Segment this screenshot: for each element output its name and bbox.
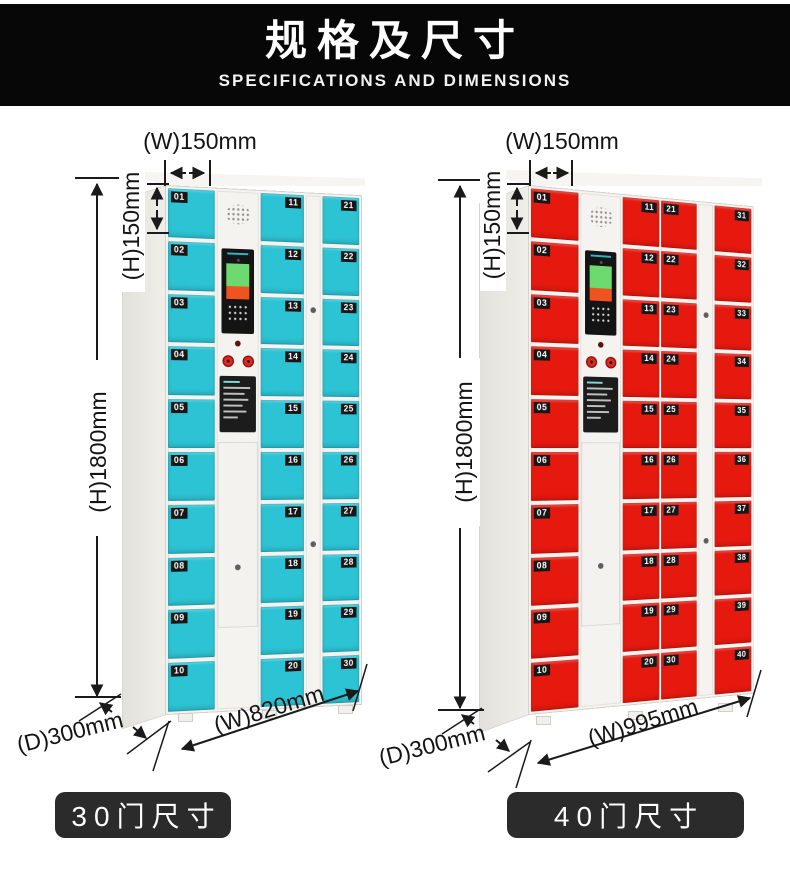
locker-door: 24	[661, 351, 697, 398]
locker-30-top-panel	[122, 167, 365, 186]
door-number-badge: 09	[171, 613, 188, 625]
locker-door: 05	[168, 399, 215, 448]
locker-column-doors: 11121314151617181920	[623, 197, 660, 703]
door-number-badge: 21	[341, 200, 357, 211]
locker-door: 35	[715, 403, 752, 449]
locker-door: 11	[623, 197, 660, 247]
locker-column-doors: 21222324252627282930	[661, 200, 697, 699]
locker-door: 25	[322, 401, 359, 448]
locker-door: 05	[531, 399, 579, 448]
terminal-panel	[221, 248, 254, 334]
locker-40-top-panel	[479, 166, 762, 186]
door-number-badge: 30	[341, 658, 357, 669]
locker-door: 14	[623, 350, 660, 398]
door-number-badge: 21	[664, 204, 679, 216]
door-number-badge: 19	[642, 606, 657, 617]
door-number-badge: 08	[171, 560, 188, 571]
locker-door: 28	[661, 551, 697, 599]
door-number-badge: 16	[642, 455, 657, 466]
locker-door: 34	[715, 353, 752, 399]
door-number-badge: 15	[285, 403, 301, 414]
door-number-badge: 34	[735, 357, 749, 368]
dim-door-height-30: (H)150mm	[119, 160, 145, 292]
locker-door: 37	[715, 500, 752, 546]
locker-door: 14	[261, 348, 304, 396]
dim-height-40: (H)1800mm	[452, 358, 480, 526]
locker-door: 13	[261, 297, 304, 346]
door-number-badge: 19	[285, 609, 301, 620]
door-number-badge: 15	[642, 404, 657, 415]
locker-door: 32	[715, 255, 752, 303]
door-number-badge: 31	[735, 210, 749, 221]
locker-door: 08	[531, 556, 579, 607]
door-number-badge: 05	[534, 402, 550, 413]
header-banner: 规格及尺寸 SPECIFICATIONS AND DIMENSIONS	[0, 4, 790, 106]
locker-door: 25	[661, 402, 697, 449]
page-subtitle: SPECIFICATIONS AND DIMENSIONS	[219, 71, 572, 91]
door-number-badge: 20	[642, 656, 657, 668]
door-number-badge: 38	[735, 552, 749, 563]
locker-door: 21	[322, 196, 359, 245]
locker-door: 29	[322, 604, 359, 652]
locker-40-front: 0102030405060708091011121314151617181920…	[528, 185, 754, 715]
instruction-sticker	[583, 376, 618, 432]
door-number-badge: 39	[735, 601, 749, 612]
locker-door: 09	[531, 607, 579, 658]
door-number-badge: 24	[341, 353, 357, 364]
locker-door: 12	[623, 248, 660, 297]
locker-door: 40	[715, 646, 752, 694]
label-30-door-size: 30门尺寸	[55, 792, 231, 838]
door-number-badge: 12	[642, 252, 657, 264]
locker-30-front: 0102030405060708091011121314151617181920…	[165, 185, 362, 715]
door-number-badge: 20	[285, 660, 301, 671]
locker-door: 03	[168, 294, 215, 344]
instruction-sticker	[220, 376, 256, 433]
terminal-panel	[585, 250, 616, 336]
speaker-grille-icon	[589, 206, 612, 227]
locker-door: 19	[623, 603, 660, 652]
door-number-badge: 26	[664, 455, 679, 465]
locker-column-doors: 01020304050607080910	[531, 188, 579, 711]
door-number-badge: 27	[664, 505, 679, 516]
locker-door: 15	[261, 400, 304, 448]
locker-door: 21	[661, 200, 697, 249]
door-number-badge: 01	[171, 191, 188, 203]
door-number-badge: 07	[534, 507, 550, 518]
door-number-badge: 10	[534, 664, 550, 676]
door-number-badge: 16	[285, 455, 301, 466]
door-number-badge: 37	[735, 503, 749, 513]
service-door	[218, 442, 258, 628]
door-number-badge: 01	[534, 192, 550, 204]
door-number-badge: 24	[664, 354, 679, 365]
terminal-screen	[590, 265, 612, 301]
door-number-badge: 02	[171, 244, 188, 256]
locker-column-doors: 21222324252627282930	[322, 196, 359, 704]
locker-door: 24	[322, 350, 359, 398]
locker-door: 11	[261, 193, 304, 243]
keyhole-icon	[235, 564, 241, 570]
locker-door: 01	[168, 188, 215, 239]
locker-foot	[178, 713, 193, 722]
locker-door: 26	[661, 452, 697, 499]
round-button-icon	[222, 355, 234, 367]
door-number-badge: 25	[341, 404, 357, 415]
terminal-screen	[226, 263, 249, 299]
door-number-badge: 12	[285, 249, 301, 260]
screen-banner	[590, 288, 612, 302]
door-number-badge: 09	[534, 612, 550, 624]
door-number-badge: 23	[664, 304, 679, 315]
door-number-badge: 29	[664, 605, 679, 616]
door-number-badge: 22	[341, 251, 357, 262]
door-number-badge: 02	[534, 244, 550, 256]
door-number-badge: 17	[642, 505, 657, 516]
camera-icon	[236, 259, 239, 262]
round-button-icon	[242, 355, 253, 367]
locker-door: 13	[623, 299, 660, 348]
locker-door: 04	[168, 346, 215, 395]
locker-door: 02	[168, 241, 215, 291]
door-number-badge: 26	[341, 455, 357, 466]
keyhole-icon	[703, 538, 708, 544]
dim-top-width-30: (W)150mm	[133, 129, 267, 154]
screen-banner	[226, 286, 249, 300]
door-number-badge: 14	[642, 353, 657, 364]
locker-door: 10	[168, 661, 215, 712]
locker-door: 23	[322, 298, 359, 346]
keypad-dots	[227, 304, 248, 321]
locker-column-doors: 01020304050607080910	[168, 188, 215, 712]
door-number-badge: 13	[642, 303, 657, 314]
door-number-badge: 32	[735, 259, 749, 270]
locker-door: 17	[261, 503, 304, 551]
door-number-badge: 06	[171, 455, 188, 466]
door-number-badge: 27	[341, 506, 357, 517]
dim-depth-40: (D)300mm	[369, 718, 495, 773]
locker-door: 27	[322, 503, 359, 551]
locker-door: 06	[531, 452, 579, 501]
door-number-badge: 25	[664, 404, 679, 415]
locker-foot	[338, 705, 353, 714]
door-number-badge: 29	[341, 607, 357, 618]
locker-door: 04	[531, 346, 579, 396]
locker-door: 23	[661, 301, 697, 349]
door-number-badge: 13	[285, 300, 301, 311]
round-button-icon	[586, 356, 597, 368]
door-number-badge: 22	[664, 254, 679, 266]
door-number-badge: 17	[285, 506, 301, 517]
door-number-badge: 05	[171, 402, 188, 413]
locker-door: 22	[322, 247, 359, 295]
door-number-badge: 04	[171, 350, 188, 361]
dim-height-30: (H)1800mm	[86, 368, 114, 536]
locker-door: 08	[168, 557, 215, 607]
locker-door: 38	[715, 549, 752, 596]
keyhole-icon	[310, 542, 316, 548]
button-row	[217, 355, 259, 368]
label-30-door-size-text: 30门尺寸	[64, 795, 221, 835]
locker-door: 17	[623, 502, 660, 550]
button-row	[580, 356, 621, 369]
locker-door: 07	[531, 504, 579, 554]
locker-door: 07	[168, 504, 215, 553]
camera-icon	[599, 261, 602, 264]
door-number-badge: 35	[735, 406, 749, 416]
locker-door: 03	[531, 294, 579, 345]
keyhole-icon	[598, 563, 604, 569]
dim-door-height-40: (H)150mm	[480, 159, 506, 291]
speaker-grille-icon	[226, 204, 250, 225]
page-title: 规格及尺寸	[265, 19, 525, 63]
door-number-badge: 11	[286, 197, 301, 208]
locker-column-control	[217, 191, 259, 710]
service-door	[581, 442, 620, 626]
label-40-door-size: 40门尺寸	[507, 792, 744, 838]
door-number-badge: 03	[171, 297, 188, 308]
door-number-badge: 04	[534, 350, 550, 361]
locker-door: 36	[715, 452, 752, 498]
locker-door: 10	[531, 659, 579, 711]
locker-door: 19	[261, 606, 304, 655]
locker-door: 31	[715, 205, 752, 253]
locker-door: 22	[661, 251, 697, 300]
door-number-badge: 06	[534, 455, 550, 466]
locker-door: 18	[623, 553, 660, 602]
locker-door: 06	[168, 452, 215, 501]
locker-column-strip	[698, 204, 712, 696]
door-number-badge: 23	[341, 302, 357, 313]
locker-door: 28	[322, 553, 359, 601]
locker-door: 26	[322, 452, 359, 499]
locker-foot	[536, 716, 551, 725]
door-number-badge: 18	[642, 556, 657, 567]
door-number-badge: 30	[664, 655, 679, 667]
door-number-badge: 18	[285, 558, 301, 569]
locker-door: 01	[531, 188, 579, 240]
dim-top-width-40: (W)150mm	[495, 129, 629, 154]
round-button-icon	[605, 357, 616, 369]
locker-door: 15	[623, 401, 660, 448]
locker-door: 29	[661, 601, 697, 650]
locker-column-doors: 31323334353637383940	[715, 205, 752, 694]
locker-door: 02	[531, 241, 579, 292]
door-number-badge: 03	[534, 297, 550, 309]
door-number-badge: 08	[534, 560, 550, 572]
brand-logo	[591, 254, 611, 257]
door-number-badge: 07	[171, 508, 188, 519]
locker-door: 12	[261, 245, 304, 294]
door-number-badge: 33	[735, 308, 749, 319]
label-40-door-size-text: 40门尺寸	[547, 795, 704, 835]
locker-door: 20	[623, 653, 660, 703]
locker-door: 39	[715, 598, 752, 646]
locker-door: 09	[168, 609, 215, 659]
indicator-led-icon	[235, 341, 241, 347]
keypad-dots	[591, 305, 611, 323]
door-number-badge: 36	[735, 455, 749, 465]
door-number-badge: 11	[642, 202, 657, 214]
locker-door: 33	[715, 304, 752, 351]
locker-column-doors: 11121314151617181920	[261, 193, 304, 707]
door-number-badge: 14	[285, 352, 301, 363]
locker-door: 16	[261, 452, 304, 500]
keyhole-icon	[703, 312, 708, 318]
door-number-badge: 28	[664, 555, 679, 566]
locker-door: 18	[261, 555, 304, 604]
locker-door: 30	[661, 650, 697, 699]
door-number-badge: 40	[735, 649, 749, 660]
indicator-led-icon	[598, 342, 604, 348]
locker-column-control	[580, 193, 621, 707]
locker-door: 27	[661, 501, 697, 548]
door-number-badge: 10	[171, 665, 188, 677]
locker-column-strip	[306, 195, 321, 705]
keyhole-icon	[310, 307, 316, 313]
brand-logo	[227, 252, 248, 255]
page: 规格及尺寸 SPECIFICATIONS AND DIMENSIONS 0102…	[0, 0, 790, 876]
locker-door: 16	[623, 452, 660, 499]
door-number-badge: 28	[341, 556, 357, 567]
dim-depth-30: (D)300mm	[7, 705, 133, 760]
